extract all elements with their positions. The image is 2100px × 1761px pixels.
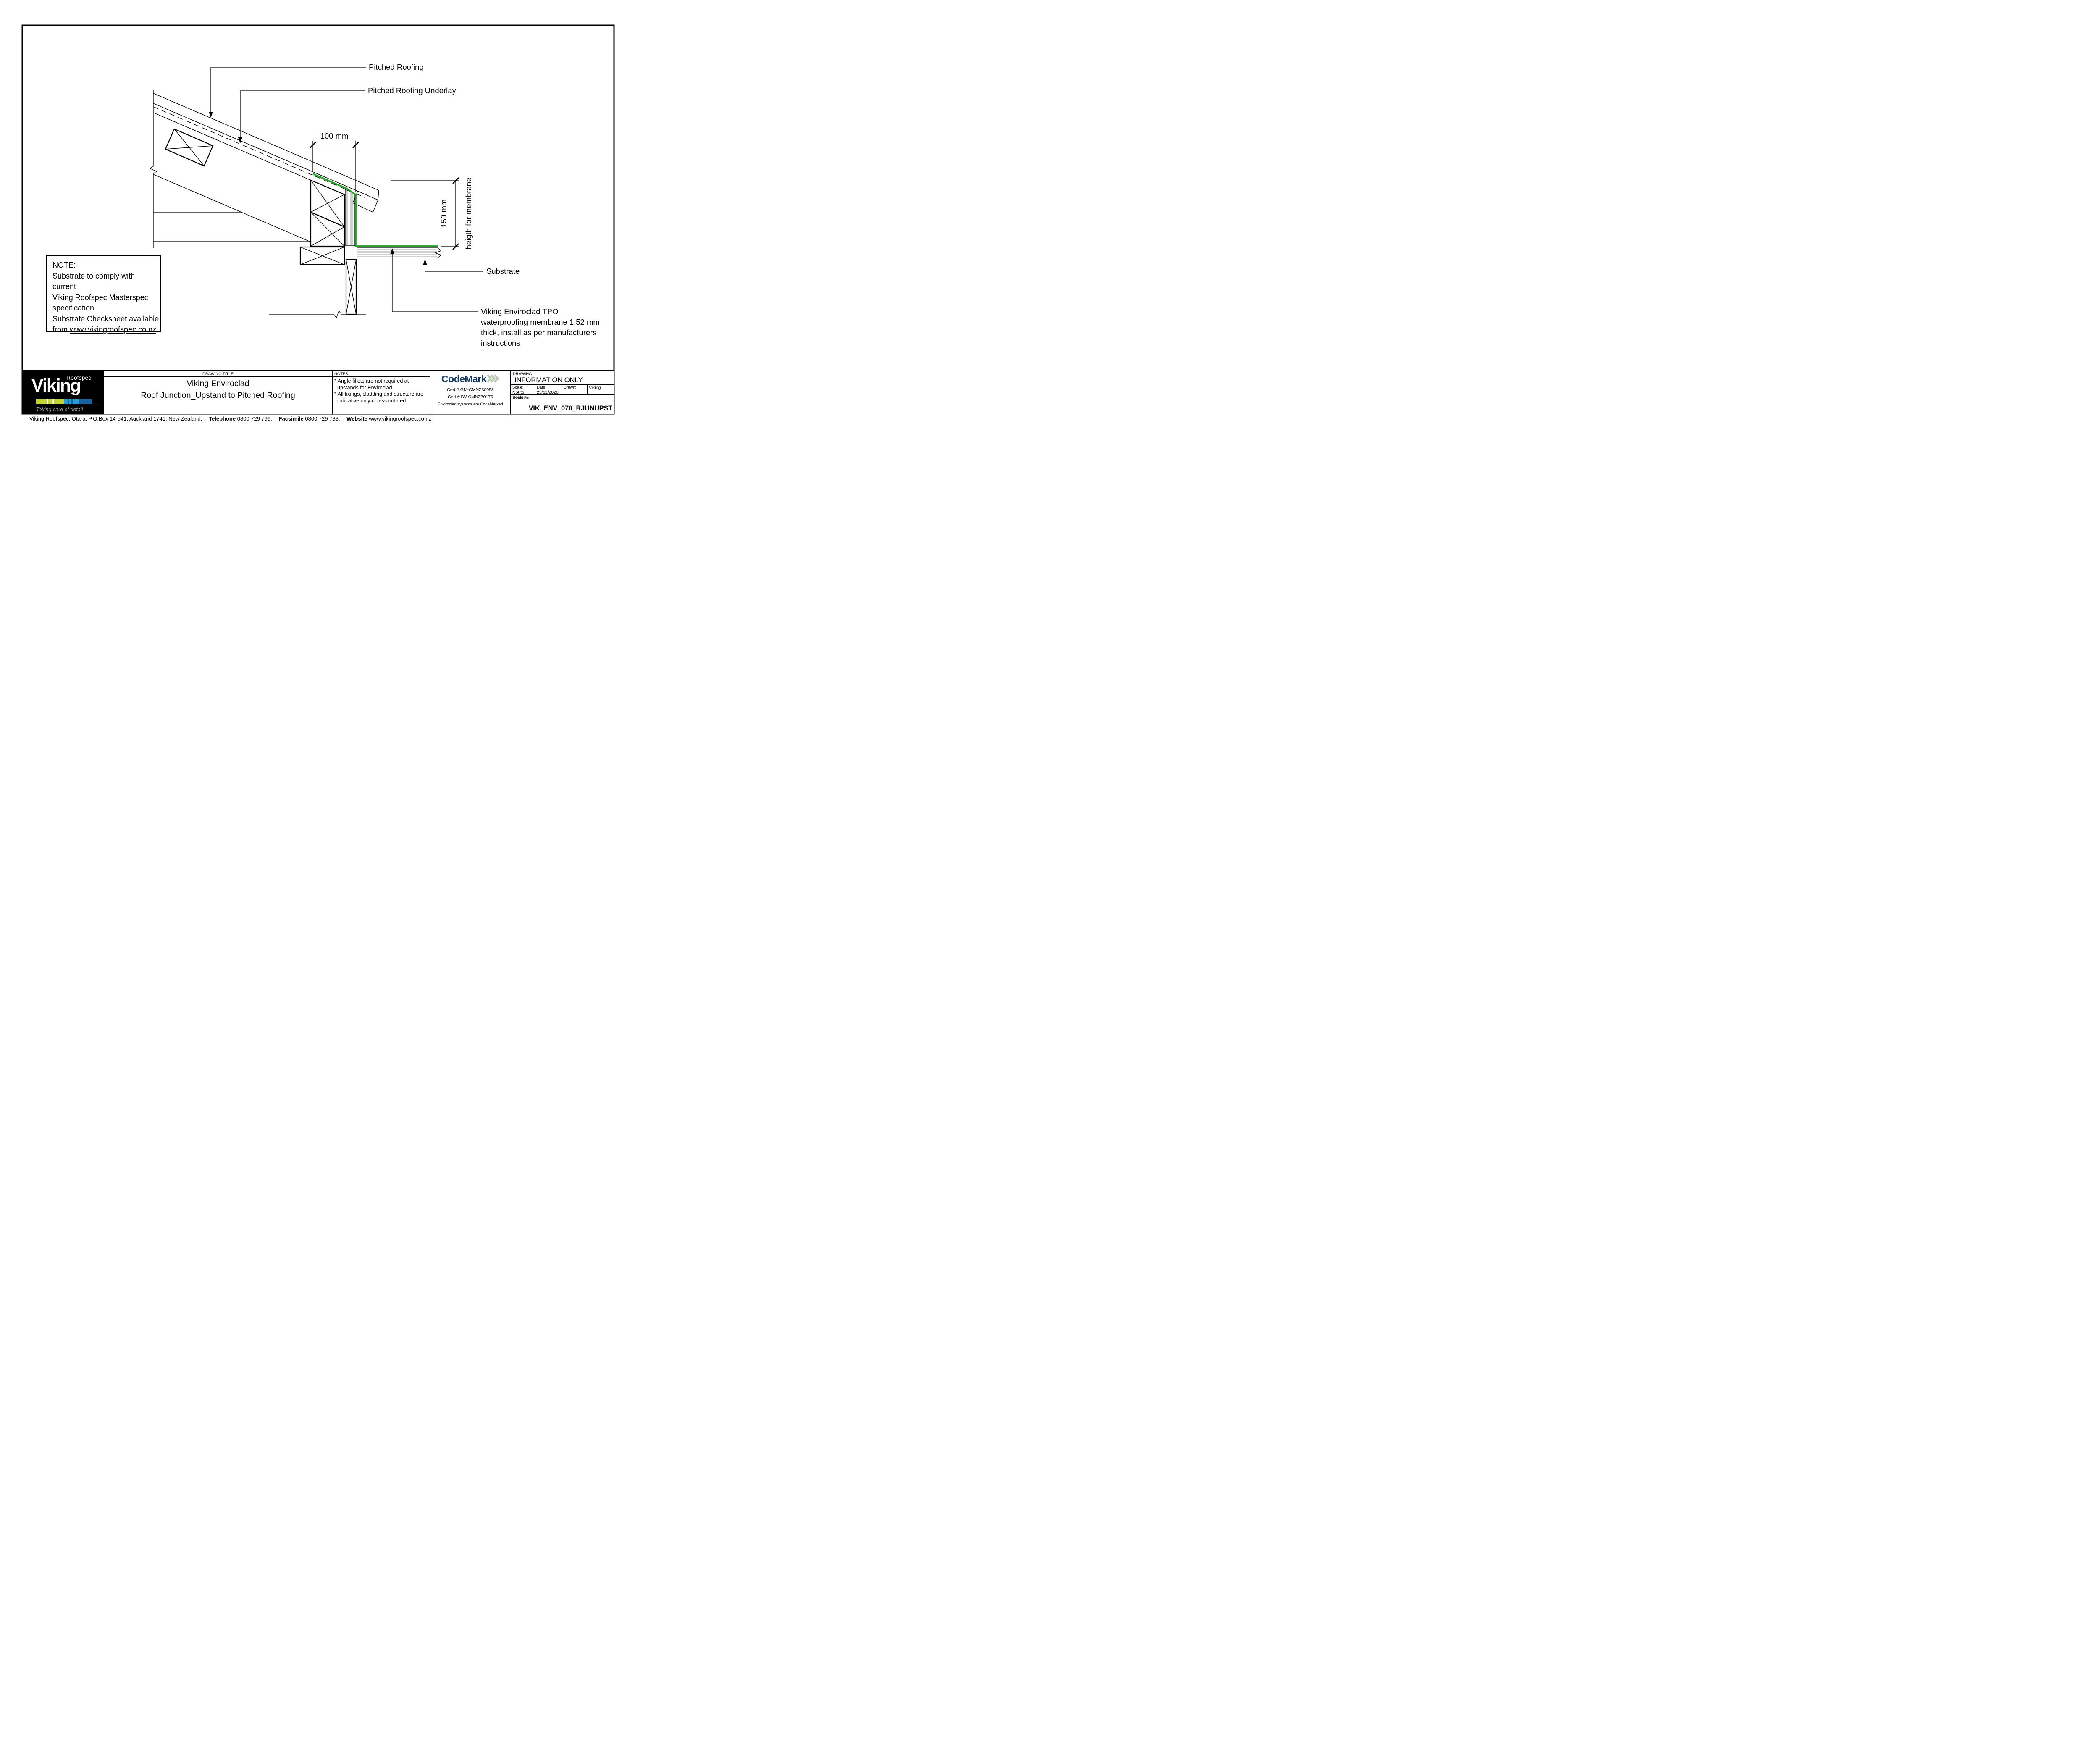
footer-facsimile-label: Facsimile	[279, 415, 304, 422]
note-item: upstands for Enviroclad	[334, 385, 429, 392]
info-status: INFORMATION ONLY	[513, 376, 612, 384]
codemark-cert-1: Cert # GM-CMNZ30058	[430, 387, 510, 392]
footer-address: Viking Roofspec, Otara, P.O.Box 14-541, …	[29, 415, 202, 422]
scale-cell: Scale: Not to Scale	[511, 385, 535, 394]
plywood-upstand	[345, 189, 355, 246]
codemark-tagline: Enviroclad systems are CodeMarked	[430, 402, 510, 407]
drawn-by-cell: Viking	[588, 385, 614, 394]
detail-ref-label: Detail Ref:	[513, 396, 612, 400]
note-line: Substrate to comply with current	[52, 271, 160, 292]
rafter-end	[353, 191, 378, 212]
note-line: from www.vikingroofspec.co.nz	[52, 324, 160, 335]
wall-stud	[346, 260, 356, 314]
note-url-link[interactable]: www.vikingroofspec.co.nz	[70, 325, 156, 334]
title-block: Roofspec Viking Taking care of detail DR…	[22, 370, 614, 414]
dim-150-note: heigth for membrane	[464, 178, 473, 250]
detail-ref-cell: Detail Ref: VIK_ENV_070_RJUNUPST	[511, 395, 614, 414]
note-line: Viking Roofspec Masterspec	[52, 292, 160, 303]
drawing-title-line2: Roof Junction_Upstand to Pitched Roofing	[141, 391, 295, 400]
notes-header: NOTES:	[333, 371, 430, 377]
purlin-blocking	[165, 129, 213, 166]
note-box: NOTE: Substrate to comply with current V…	[46, 255, 161, 332]
pitched-roofing-label: Pitched Roofing	[369, 63, 424, 71]
footer: Viking Roofspec, Otara, P.O.Box 14-541, …	[29, 415, 431, 422]
drawing-sheet: 100 mm 150 mm heigth for membrane Pitche…	[0, 0, 626, 440]
drawing-title-header: DRAWING TITLE	[104, 371, 332, 377]
break-line-left	[150, 90, 157, 248]
membrane-label-line2: waterproofing membrane 1.52 mm	[480, 318, 600, 326]
leader-membrane: Viking Enviroclad TPO waterproofing memb…	[390, 248, 600, 347]
drawn-value: Viking	[589, 385, 613, 390]
wall-bottom-line	[269, 311, 366, 318]
date-value: 23/11/2020	[537, 390, 560, 395]
note-line: Substrate Checksheet available	[52, 314, 160, 325]
footer-telephone-label: Telephone	[209, 415, 236, 422]
viking-logo: Roofspec Viking Taking care of detail	[22, 371, 103, 414]
notes-cell: NOTES: * Angle fillets are not required …	[332, 371, 430, 414]
logo-brand: Viking	[31, 376, 80, 396]
logo-color-bar	[36, 399, 92, 404]
drawing-title-cell: DRAWING TITLE Viking Enviroclad Roof Jun…	[103, 371, 332, 414]
date-label: Date:	[537, 385, 560, 390]
leader-substrate: Substrate	[423, 259, 520, 276]
underlay-dashed-line	[153, 107, 365, 197]
membrane-label-line1: Viking Enviroclad TPO	[481, 307, 558, 316]
footer-facsimile: 0800 729 788,	[305, 415, 340, 422]
detail-ref-value: VIK_ENV_070_RJUNUPST	[529, 405, 612, 413]
drawn-label: Drawn:	[564, 385, 585, 390]
substrate-label: Substrate	[486, 267, 520, 276]
note-item: * All fixings, cladding and structure ar…	[334, 391, 429, 398]
underlay-label: Pitched Roofing Underlay	[368, 86, 457, 95]
membrane-label-line4: instructions	[481, 339, 520, 347]
footer-telephone: 0800 729 799,	[237, 415, 272, 422]
codemark-chevrons-icon	[487, 374, 499, 385]
info-cell: DRAWING INFORMATION ONLY Scale: Not to S…	[510, 371, 614, 414]
upstand-blocking	[311, 180, 344, 246]
interior-lines	[153, 212, 311, 241]
top-plate	[300, 247, 344, 265]
drawn-cell: Drawn:	[562, 385, 588, 394]
note-line: specification	[52, 303, 160, 314]
codemark-cert-2: Cert # BV-CMNZ70176	[430, 394, 510, 400]
membrane-line	[313, 174, 438, 246]
codemark-cell: CodeMark Cert # GM-CMNZ30058 Cert # BV-C…	[430, 371, 510, 414]
codemark-logo: CodeMark	[441, 373, 486, 385]
logo-tagline: Taking care of detail	[36, 407, 83, 413]
drawing-title-line1: Viking Enviroclad	[186, 379, 249, 389]
logo-rule	[26, 405, 98, 405]
footer-website[interactable]: www.vikingroofspec.co.nz	[369, 415, 431, 422]
membrane-label-line3: thick, install as per manufacturers	[481, 328, 597, 337]
note-item: indicative only unless notated	[334, 398, 429, 405]
info-header: DRAWING	[513, 372, 612, 376]
footer-website-label: Website	[346, 415, 367, 422]
scale-label: Scale:	[512, 385, 533, 390]
substrate-slab	[357, 248, 441, 258]
dim-150: 150 mm heigth for membrane	[391, 178, 473, 250]
dim-100-label: 100 mm	[320, 131, 349, 140]
note-title: NOTE:	[52, 260, 160, 271]
dim-150-label: 150 mm	[439, 200, 448, 228]
note-item: * Angle fillets are not required at	[334, 378, 429, 385]
date-cell: Date: 23/11/2020	[535, 385, 562, 394]
